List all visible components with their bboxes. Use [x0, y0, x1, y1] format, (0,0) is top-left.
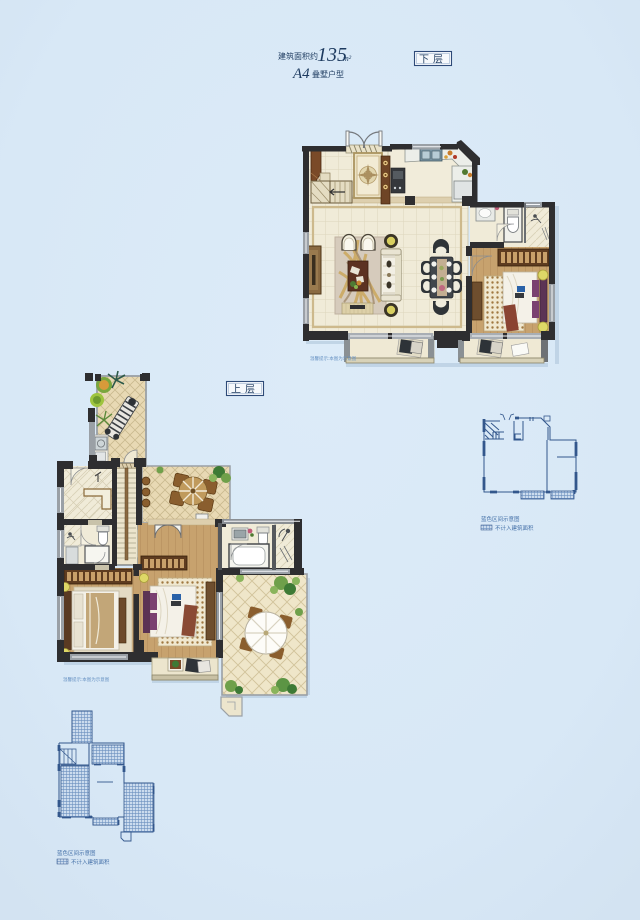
- svg-text:蓝色区间示意图: 蓝色区间示意图: [57, 849, 96, 857]
- svg-text:m²: m²: [343, 54, 352, 63]
- svg-text:上层: 上层: [231, 384, 259, 396]
- svg-text:建筑面积约: 建筑面积约: [278, 51, 318, 61]
- svg-text:叠墅户型: 叠墅户型: [312, 69, 344, 79]
- svg-text:不计入建筑面积: 不计入建筑面积: [71, 858, 110, 866]
- svg-text:蓝色区间示意图: 蓝色区间示意图: [481, 515, 520, 523]
- svg-text:不计入建筑面积: 不计入建筑面积: [495, 524, 534, 532]
- svg-text:温馨提示:本图为示意图: 温馨提示:本图为示意图: [63, 676, 110, 683]
- svg-text:温馨提示:本图为示意图: 温馨提示:本图为示意图: [310, 355, 357, 362]
- svg-text:下层: 下层: [419, 54, 447, 66]
- svg-text:A4: A4: [292, 66, 310, 82]
